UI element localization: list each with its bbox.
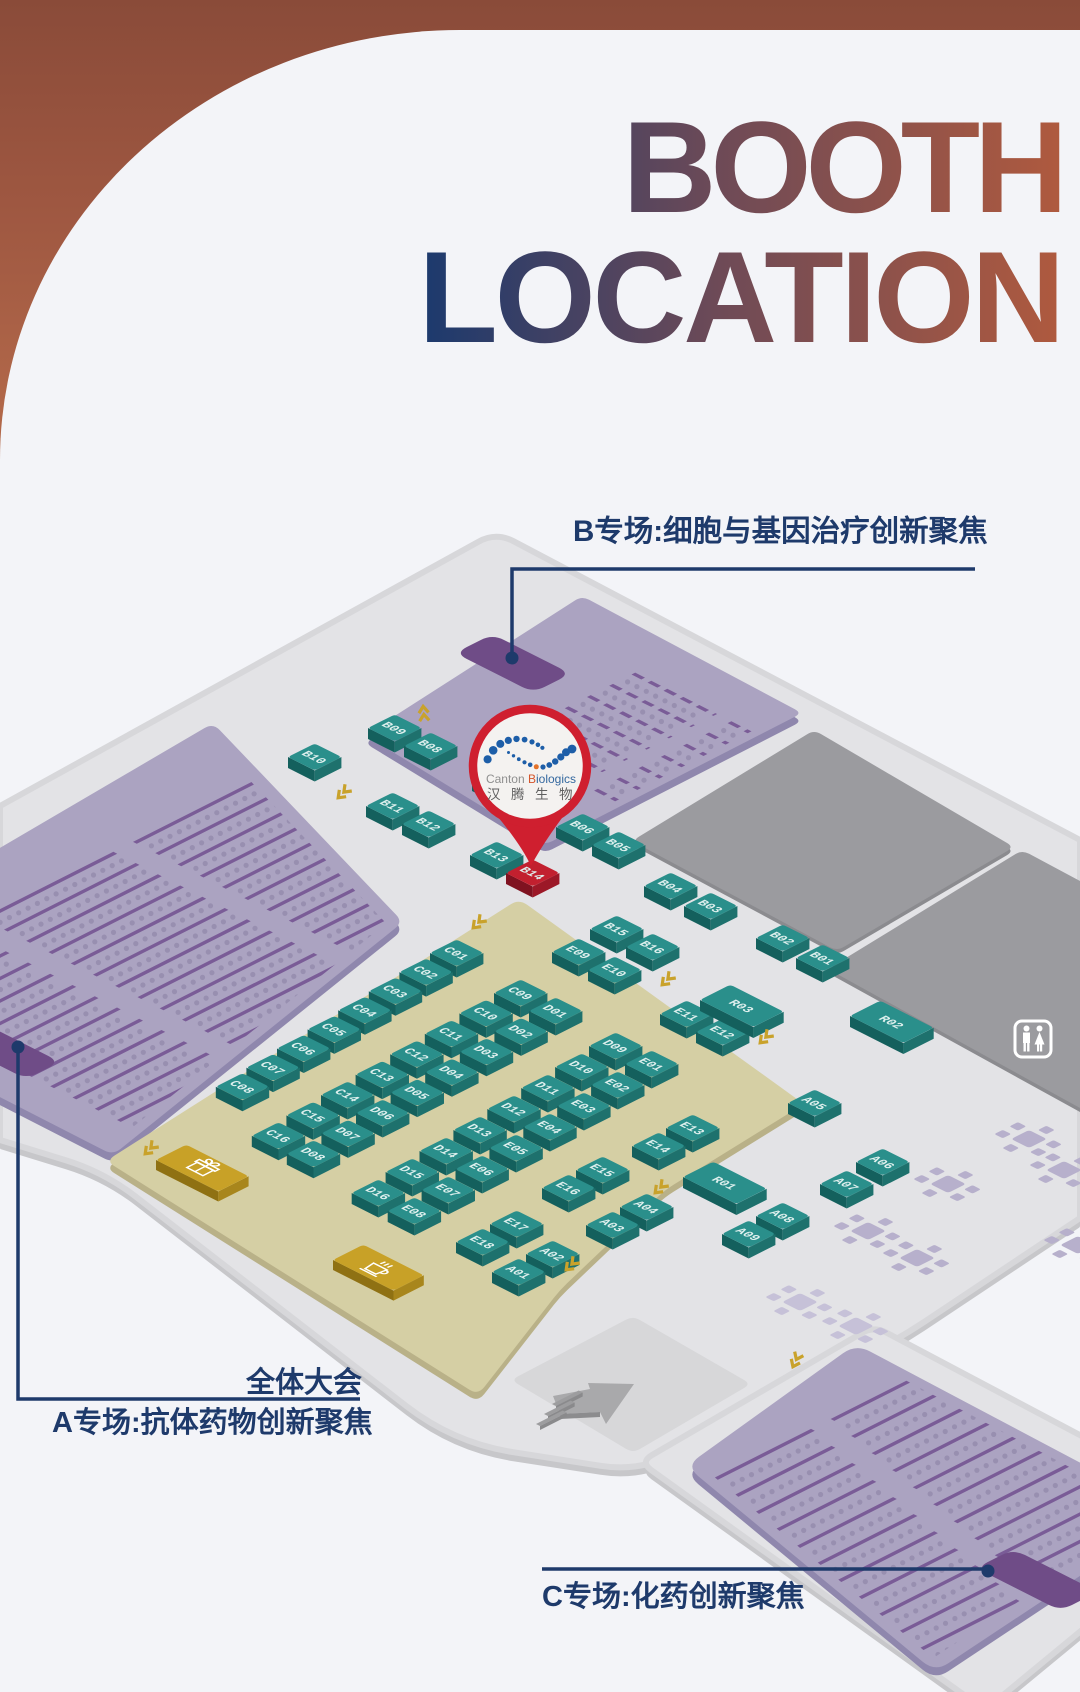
svg-text:A专场:抗体药物创新聚焦: A专场:抗体药物创新聚焦 [52, 1405, 373, 1439]
svg-text:Canton Biologics: Canton Biologics [486, 772, 576, 786]
svg-text:BOOTH: BOOTH [623, 94, 1062, 240]
svg-text:LOCATION: LOCATION [418, 224, 1062, 370]
svg-text:汉腾生物: 汉腾生物 [487, 786, 583, 802]
svg-text:B专场:细胞与基因治疗创新聚焦: B专场:细胞与基因治疗创新聚焦 [573, 514, 988, 548]
svg-text:C专场:化药创新聚焦: C专场:化药创新聚焦 [542, 1579, 805, 1613]
svg-text:全体大会: 全体大会 [245, 1365, 362, 1399]
